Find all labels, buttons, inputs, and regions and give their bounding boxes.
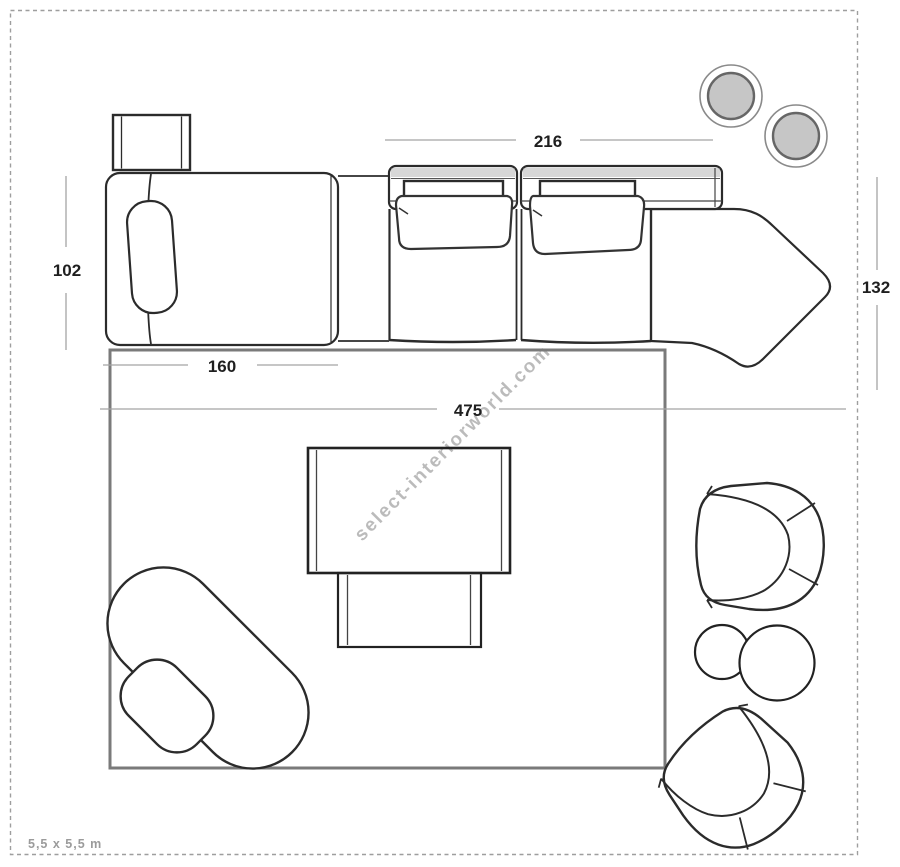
dimension-102-label: 102 [53, 261, 81, 280]
seat-cushion-right [530, 196, 644, 254]
tub-armchair-lower [647, 691, 827, 867]
lounge-chair [84, 544, 331, 791]
dimension-132: 132 [862, 177, 890, 390]
dimension-216: 216 [385, 132, 713, 151]
chaise-pillow [126, 200, 179, 315]
tub-armchair-upper [696, 483, 823, 610]
headrest-right [540, 181, 635, 197]
coffee-table [308, 448, 510, 573]
seat-cushion-left [396, 196, 512, 249]
side-table [113, 115, 190, 170]
headrest-left [404, 181, 503, 197]
sofa-seat-module-right [521, 181, 651, 343]
floor-plan: select-interiorworld.com 216 102 132 160… [0, 0, 900, 867]
dimension-160: 160 [103, 357, 338, 376]
sofa-seat-module-left [389, 181, 517, 342]
pouf-lower [765, 105, 827, 167]
scale-label: 5,5 x 5,5 m [28, 837, 102, 851]
dimension-132-label: 132 [862, 278, 890, 297]
side-bench [338, 573, 481, 647]
watermark-text: select-interiorworld.com [351, 341, 556, 546]
sofa-corner-end-unit [651, 209, 830, 367]
duo-round-side-tables [695, 625, 815, 701]
dimension-216-label: 216 [534, 132, 562, 151]
floor-plan-canvas: select-interiorworld.com 216 102 132 160… [0, 0, 900, 867]
dimension-102: 102 [53, 176, 81, 350]
chaise-longue [106, 173, 338, 345]
dimension-475-label: 475 [454, 401, 482, 420]
dimension-160-label: 160 [208, 357, 236, 376]
dimension-475: 475 [100, 401, 846, 420]
sofa-connector [338, 176, 389, 341]
pouf-upper [700, 65, 762, 127]
